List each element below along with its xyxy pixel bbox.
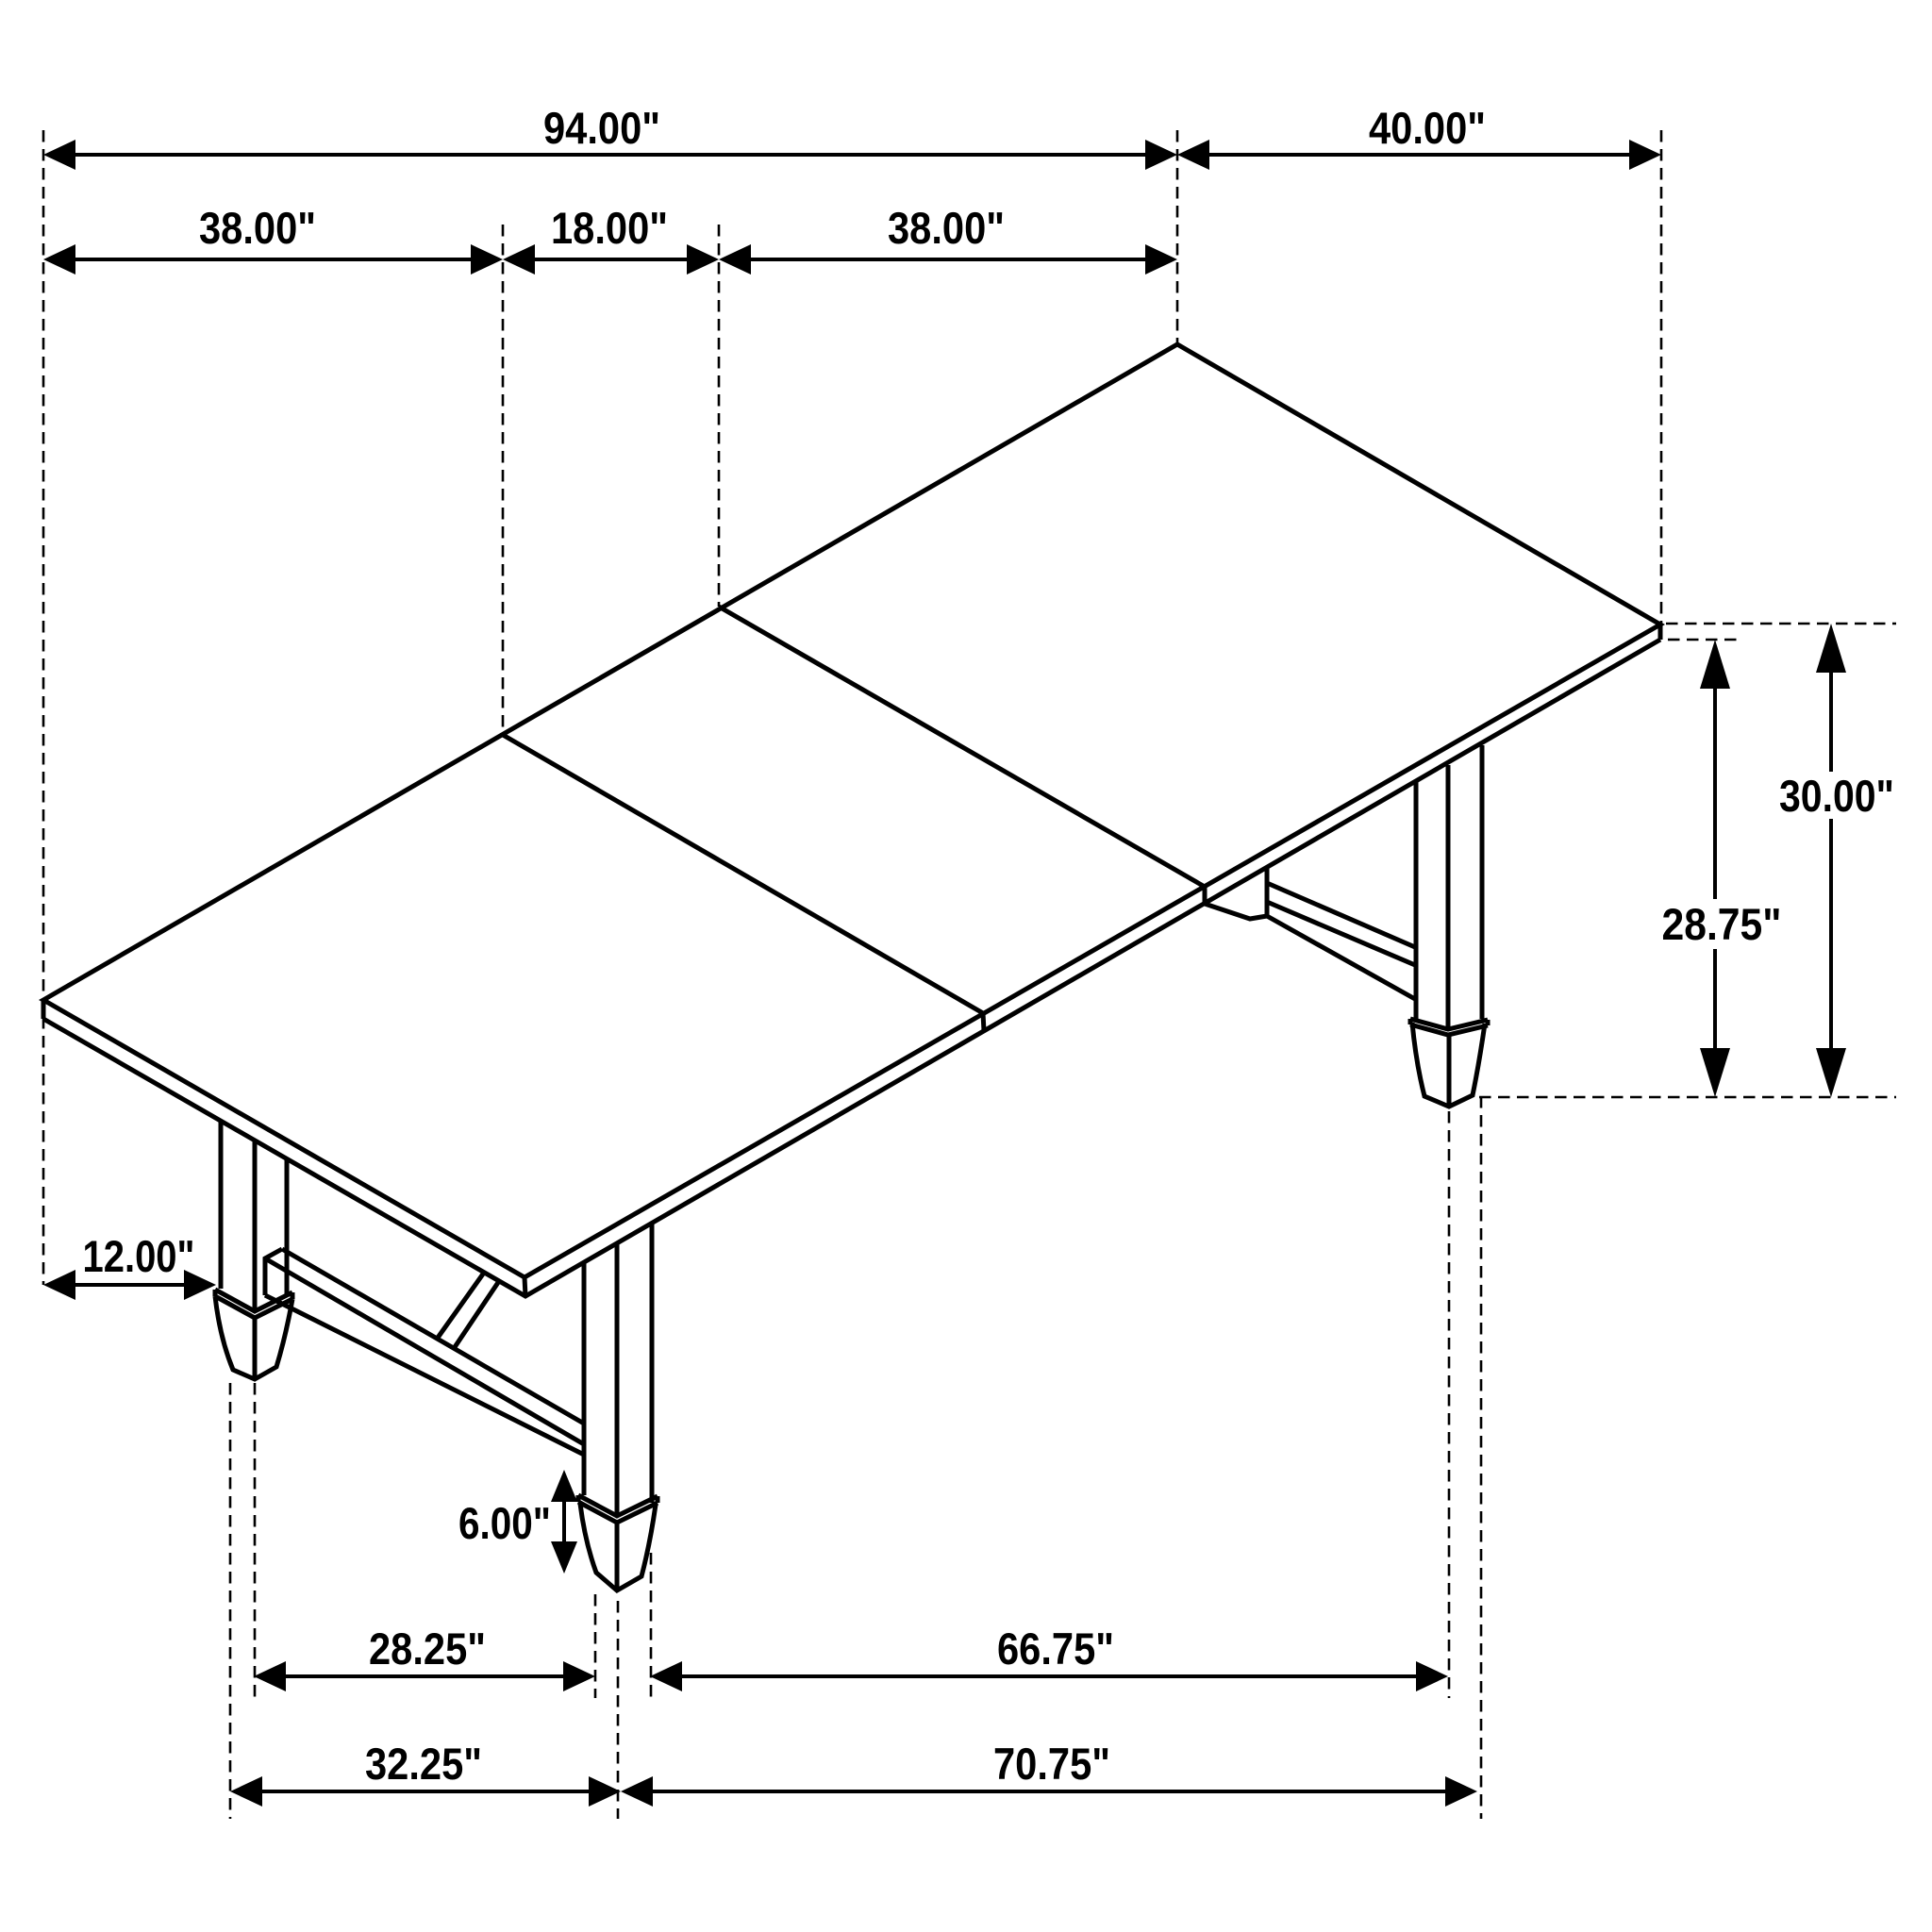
svg-text:94.00": 94.00" [543,103,660,153]
svg-text:30.00": 30.00" [1779,771,1894,821]
svg-text:28.75": 28.75" [1662,899,1782,949]
svg-text:28.25": 28.25" [369,1624,486,1674]
svg-text:12.00": 12.00" [83,1231,195,1281]
svg-text:66.75": 66.75" [997,1624,1114,1674]
svg-text:6.00": 6.00" [458,1498,551,1548]
svg-text:32.25": 32.25" [365,1739,482,1789]
svg-text:40.00": 40.00" [1369,103,1486,153]
svg-text:18.00": 18.00" [551,203,668,253]
svg-text:38.00": 38.00" [199,203,316,253]
svg-text:70.75": 70.75" [993,1739,1110,1789]
svg-text:38.00": 38.00" [888,203,1005,253]
